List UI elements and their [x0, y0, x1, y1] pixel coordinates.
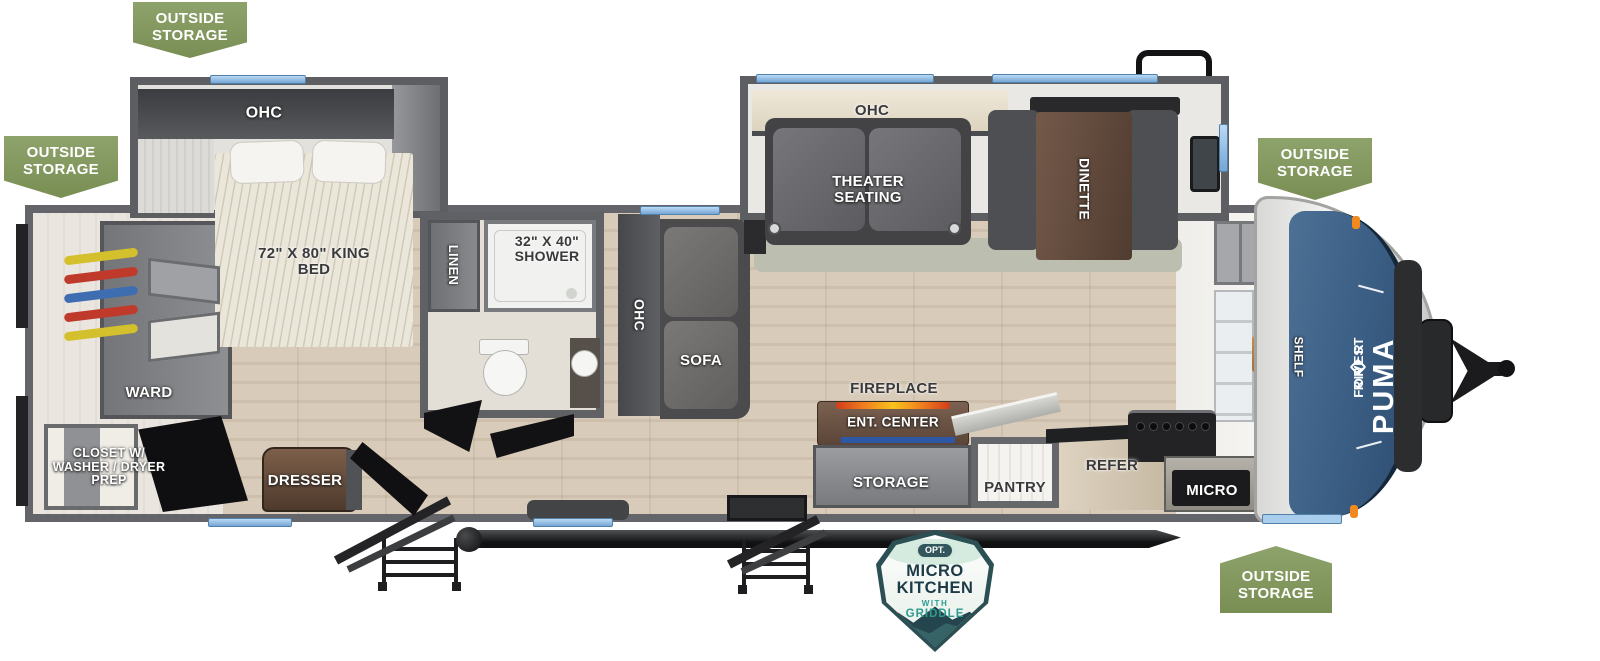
- fireplace-flame-strip: [836, 402, 950, 409]
- dinette-bench-left: [988, 110, 1040, 250]
- brand-maker-forest: FOREST: [1351, 336, 1366, 398]
- cupholder-right: [948, 222, 961, 235]
- pantry-cabinet: [971, 437, 1059, 508]
- awning-end-cap: [456, 527, 482, 552]
- burner-2: [1149, 422, 1158, 431]
- wardrobe-door-lower: [148, 312, 220, 363]
- badge-text: OUTSIDE STORAGE: [11, 144, 111, 179]
- king-slide-wall: [138, 139, 214, 213]
- cooktop: [1128, 410, 1216, 462]
- entry-mat: [527, 500, 629, 520]
- burner-4: [1175, 422, 1184, 431]
- label-refer: REFER: [1086, 458, 1138, 474]
- label-dresser: DRESSER: [268, 473, 343, 489]
- window-slide-side: [1219, 124, 1228, 172]
- window-king-slide: [210, 75, 306, 84]
- label-shelf: SHELF: [1292, 337, 1305, 378]
- burner-5: [1188, 422, 1197, 431]
- marker-light-top: [1352, 216, 1360, 229]
- rear-cap-trim-bottom: [16, 396, 28, 506]
- window-dinette-slide: [992, 74, 1158, 83]
- label-ohc-king: OHC: [246, 104, 282, 121]
- burner-6: [1201, 422, 1210, 431]
- main-steps-platform: [727, 495, 807, 521]
- badge-text: OUTSIDE STORAGE: [1226, 568, 1326, 603]
- rear-cap-trim-top: [16, 224, 28, 328]
- label-sofa: SOFA: [680, 353, 722, 369]
- label-ward: WARD: [125, 385, 172, 401]
- bath-sink: [571, 350, 598, 377]
- badge-outside-storage-bottom: OUTSIDE STORAGE: [1220, 546, 1332, 613]
- label-ohc-sofa: OHC: [631, 299, 646, 331]
- shower-drain: [566, 288, 577, 299]
- slide-wall-tv: [1190, 136, 1220, 192]
- fireplace-blue-strip: [841, 437, 955, 443]
- label-micro: MICRO: [1186, 483, 1238, 499]
- dinette-bench-right: [1126, 110, 1178, 250]
- burner-3: [1162, 422, 1171, 431]
- label-ohc-theater: OHC: [855, 103, 889, 119]
- king-pillow-right: [311, 140, 386, 185]
- sofa-cushion-top: [664, 227, 738, 317]
- label-storage: STORAGE: [853, 475, 929, 491]
- opt-sub-line1: WITH: [881, 599, 989, 608]
- label-fireplace: FIREPLACE: [850, 381, 938, 397]
- front-rock-guard: [1394, 260, 1422, 472]
- window-rear-bottom: [208, 518, 292, 527]
- burner-1: [1136, 422, 1145, 431]
- label-pantry: PANTRY: [984, 480, 1046, 496]
- badge-outside-storage-right: OUTSIDE STORAGE: [1258, 138, 1372, 200]
- window-mid-bottom: [533, 518, 613, 527]
- hitch-coupler-tip: [1498, 360, 1515, 377]
- marker-light-bottom: [1350, 505, 1358, 518]
- label-king-bed: 72" X 80" KING BED: [258, 246, 370, 278]
- toilet-bowl: [483, 350, 527, 396]
- badge-text: OUTSIDE STORAGE: [140, 10, 240, 45]
- window-theater-slide: [756, 74, 934, 83]
- window-top-wall: [640, 206, 720, 215]
- cupholder-left: [768, 222, 781, 235]
- opt-title-line2: KITCHEN: [881, 579, 989, 598]
- brand-column: RIVER FOREST: [1346, 260, 1370, 474]
- label-linen: LINEN: [446, 245, 460, 286]
- badge-text: OUTSIDE STORAGE: [1265, 146, 1365, 181]
- label-closet: CLOSET W/ WASHER / DRYER PREP: [50, 447, 168, 488]
- label-dinette: DINETTE: [1076, 158, 1091, 220]
- opt-badge-inner: OPT. MICRO KITCHEN WITH GRIDDLE: [881, 535, 989, 647]
- opt-micro-kitchen-badge: OPT. MICRO KITCHEN WITH GRIDDLE: [876, 530, 994, 652]
- front-cap-window: [1262, 514, 1342, 524]
- opt-pill: OPT.: [916, 542, 954, 559]
- badge-outside-storage-left: OUTSIDE STORAGE: [4, 136, 118, 198]
- label-shower: 32" X 40" SHOWER: [495, 234, 599, 264]
- opt-sub-line2: GRIDDLE: [881, 608, 989, 620]
- king-pillow-left: [229, 140, 304, 185]
- wall-stub: [744, 220, 766, 254]
- label-ent-center: ENT. CENTER: [847, 416, 939, 431]
- label-theater-seating: THEATER SEATING: [820, 174, 916, 206]
- propane-cover: [1419, 319, 1453, 423]
- badge-outside-storage-top: OUTSIDE STORAGE: [133, 2, 247, 58]
- front-cabinet-column: [1214, 290, 1254, 422]
- puma-floorplan: RIVER FOREST PUMA OHC 72" X 80" KING BED…: [0, 0, 1600, 661]
